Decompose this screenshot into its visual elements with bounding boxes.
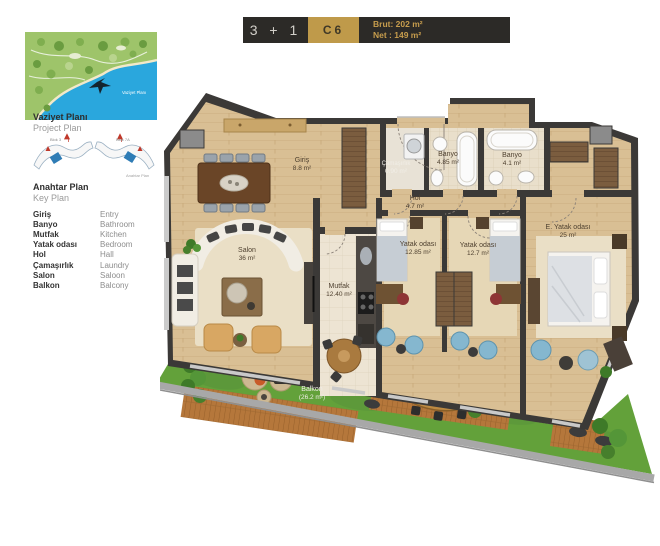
unit-code-badge: C6 <box>308 17 359 43</box>
nightstand <box>410 217 423 229</box>
legend-row: BanyoBathroom <box>33 219 173 229</box>
room-label-banyo1: Banyo4.85 m² <box>437 151 459 167</box>
legend-term: Salon <box>33 271 100 280</box>
armchair <box>252 326 281 353</box>
shaft <box>590 126 612 144</box>
pouf <box>377 328 395 346</box>
legend-translation: Saloon <box>100 271 125 280</box>
room-label-giris: Giriş8.8 m² <box>293 157 311 173</box>
dresser <box>528 278 540 324</box>
room-label-banyo2: Banyo4.1 m² <box>502 152 522 168</box>
pouf <box>479 341 497 359</box>
legend: GirişEntry BanyoBathroom MutfakKitchen Y… <box>33 209 173 291</box>
map-land <box>25 32 157 120</box>
legend-row: HolHall <box>33 250 173 260</box>
dressing-wardrobe <box>550 142 588 162</box>
kitchen-sink <box>360 247 372 265</box>
legend-row: SalonSaloon <box>33 270 173 280</box>
project-plan-title: Vaziyet Planı <box>33 112 88 122</box>
project-plan-map: Vaziyet Planı <box>25 32 157 120</box>
legend-term: Giriş <box>33 210 100 219</box>
shaft <box>180 130 204 148</box>
floor-plan-sheet: 3 + 1 C6 Brut: 202 m² Net : 149 m² <box>0 0 660 546</box>
dressing-wardrobe <box>594 148 618 188</box>
legend-term: Balkon <box>33 281 100 290</box>
key-plan-subtitle: Key Plan <box>33 193 69 203</box>
legend-translation: Entry <box>100 210 119 219</box>
legend-row: GirişEntry <box>33 209 173 219</box>
legend-term: Hol <box>33 250 100 259</box>
lounge-chair <box>578 350 598 370</box>
room-label-yatak1: Yatak odası12.85 m² <box>400 241 436 257</box>
nightstand <box>612 234 627 249</box>
room-label-mutfak: Mutfak12.40 m² <box>326 283 352 299</box>
room-label-e-yatak: E. Yatak odası25 m² <box>546 224 591 240</box>
room-label-hol: Hol4.7 m² <box>406 195 424 211</box>
legend-translation: Kitchen <box>100 230 127 239</box>
room-label-camasirlik: Çamaşırlık0.90 m² <box>382 160 411 176</box>
toilet <box>431 170 443 186</box>
legend-translation: Bedroom <box>100 240 132 249</box>
room-label-yatak2: Yatak odası12.7 m² <box>460 242 496 258</box>
unit-type-badge: 3 + 1 <box>243 17 308 43</box>
pouf <box>405 336 423 354</box>
desk-chair <box>397 293 409 305</box>
block-right-label: Blok 7A <box>116 137 130 142</box>
room-label-salon: Salon36 m² <box>238 247 256 263</box>
legend-translation: Laundry <box>100 261 129 270</box>
legend-translation: Hall <box>100 250 114 259</box>
legend-row: BalkonBalcony <box>33 280 173 290</box>
gross-area-text: Brut: 202 m² <box>373 19 423 30</box>
legend-term: Çamaşırlık <box>33 261 100 270</box>
sink <box>433 137 447 151</box>
tv-unit <box>304 262 313 324</box>
nightstand <box>476 217 489 229</box>
map-inline-label: Vaziyet Planı <box>122 90 146 95</box>
key-plan: Blok 3 Blok 7A Anahtar Plan <box>30 131 158 179</box>
desk-chair <box>490 293 502 305</box>
unit-marker-icon <box>65 134 70 142</box>
key-plan-block-left <box>34 134 93 169</box>
sink <box>489 171 503 185</box>
toilet <box>518 171 534 183</box>
hall-wardrobe <box>342 128 366 208</box>
legend-term: Yatak odası <box>33 240 100 249</box>
legend-row: MutfakKitchen <box>33 229 173 239</box>
legend-row: Yatak odasıBedroom <box>33 240 173 250</box>
block-left-label: Blok 3 <box>50 137 62 142</box>
lounge-chair <box>531 340 551 360</box>
unit-area-badge: Brut: 202 m² Net : 149 m² <box>359 17 510 43</box>
floor-plan: Giriş8.8 m² Çamaşırlık0.90 m² Banyo4.85 … <box>160 86 660 486</box>
legend-translation: Bathroom <box>100 220 135 229</box>
key-plan-caption: Anahtar Plan <box>126 173 149 178</box>
net-area-text: Net : 149 m² <box>373 30 421 41</box>
console-table <box>224 119 306 132</box>
legend-term: Mutfak <box>33 230 100 239</box>
pouf <box>451 332 469 350</box>
laundry-fixtures <box>404 134 424 159</box>
legend-row: ÇamaşırlıkLaundry <box>33 260 173 270</box>
legend-translation: Balcony <box>100 281 128 290</box>
armchair <box>204 324 233 351</box>
room-label-balkon: Balkon(26.2 m²) <box>299 386 325 402</box>
legend-term: Banyo <box>33 220 100 229</box>
key-plan-title: Anahtar Plan <box>33 182 89 192</box>
